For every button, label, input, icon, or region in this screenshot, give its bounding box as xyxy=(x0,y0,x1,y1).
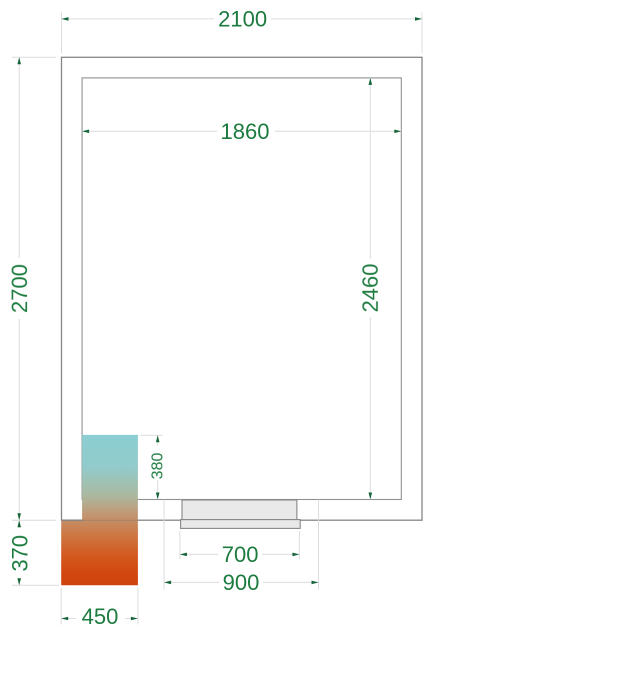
svg-text:380: 380 xyxy=(149,453,166,480)
svg-text:2460: 2460 xyxy=(358,264,383,313)
svg-text:700: 700 xyxy=(222,542,259,567)
svg-text:1860: 1860 xyxy=(221,119,270,144)
svg-text:900: 900 xyxy=(223,570,260,595)
svg-text:450: 450 xyxy=(82,604,119,629)
svg-text:370: 370 xyxy=(7,535,32,572)
svg-text:2100: 2100 xyxy=(218,7,267,32)
svg-text:2700: 2700 xyxy=(7,264,32,313)
